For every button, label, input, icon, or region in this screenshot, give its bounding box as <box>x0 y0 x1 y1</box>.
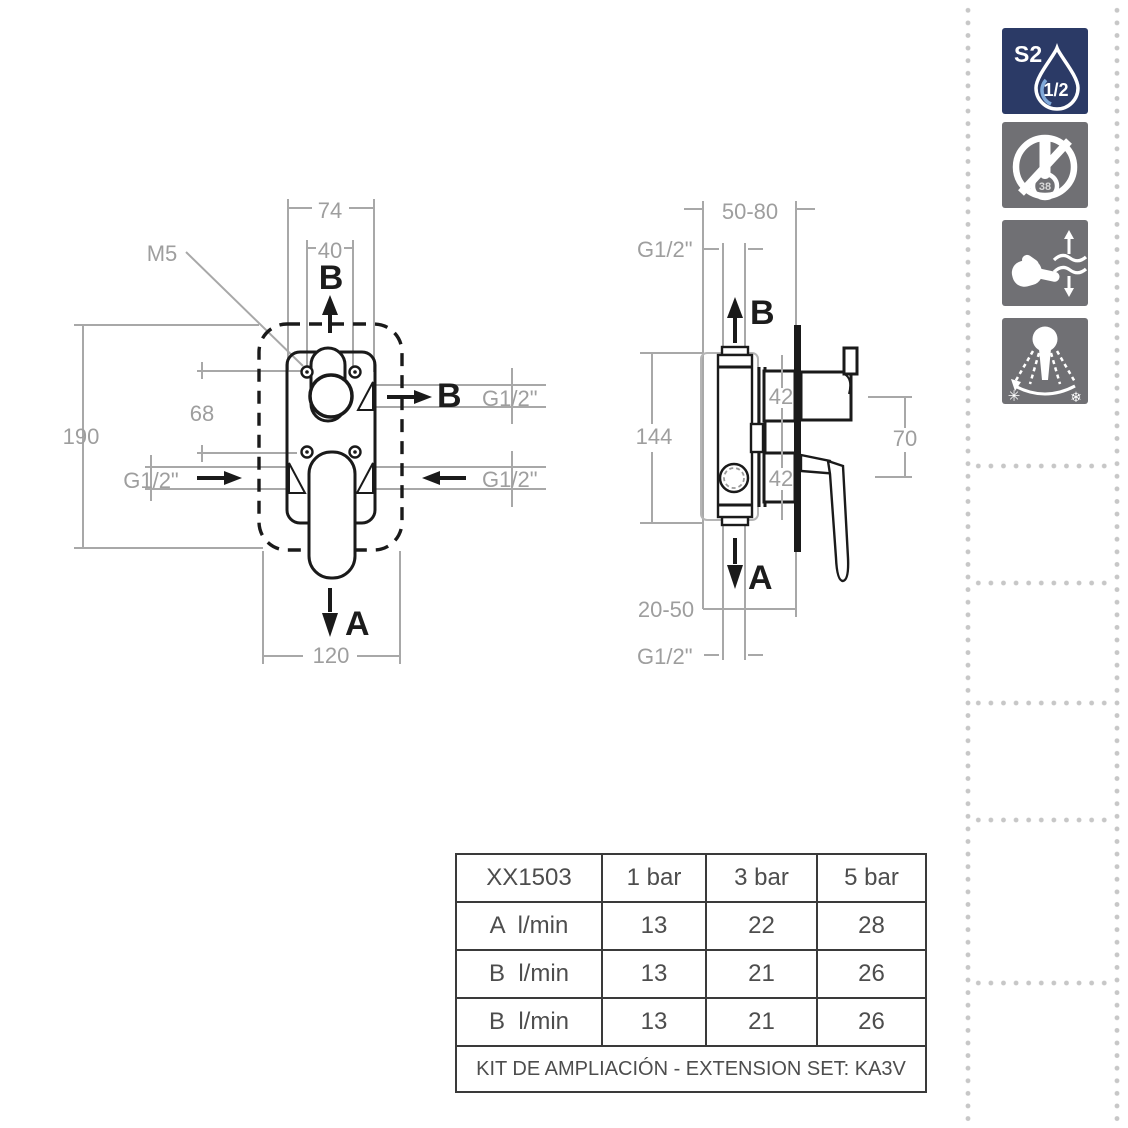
cell-value: 21 <box>706 950 817 998</box>
table-footer-row: KIT DE AMPLIACIÓN - EXTENSION SET: KA3V <box>456 1046 926 1092</box>
sidebar-dotted-divider <box>972 817 1112 823</box>
table-row: B l/min 13 21 26 <box>456 950 926 998</box>
col-header-5bar: 5 bar <box>817 854 926 902</box>
lever-handle <box>309 452 355 578</box>
hand-icon <box>1009 253 1060 290</box>
sidebar-dotted-divider <box>972 580 1112 586</box>
cell-value: 26 <box>817 998 926 1046</box>
thread-label-outlet-side: G1/2" <box>482 386 538 411</box>
table-header-row: XX1503 1 bar 3 bar 5 bar <box>456 854 926 902</box>
flow-class-drop-icon: S2 1/2 <box>1002 28 1088 114</box>
up-down-arrows-icon <box>1064 230 1074 297</box>
dim-label-68: 68 <box>190 401 214 426</box>
cell-value: 22 <box>706 902 817 950</box>
front-fixture <box>287 348 375 578</box>
hand-flow-adjust-icon <box>1002 220 1088 306</box>
trim-plate-profile <box>794 325 801 552</box>
thread-label-top: G1/2" <box>637 237 693 262</box>
dim-label-144: 144 <box>636 424 673 449</box>
side-dimension-lines <box>640 201 912 660</box>
cell-value: 13 <box>602 902 706 950</box>
flow-rate-table: XX1503 1 bar 3 bar 5 bar A l/min 13 22 2… <box>455 853 927 1093</box>
icon-badge-s2: S2 <box>1014 41 1042 67</box>
side-view: 50-80 G1/2" 144 42 42 70 20-50 G1/2" B A <box>636 199 918 669</box>
handle-blade <box>828 461 848 581</box>
row-label: B l/min <box>456 998 602 1046</box>
hot-glyph-icon: ✳ <box>1008 388 1021 404</box>
sidebar-dotted-divider <box>972 980 1112 986</box>
snowflake-icon: ❄ <box>1070 389 1082 404</box>
col-header-3bar: 3 bar <box>706 854 817 902</box>
extension-set-note: KIT DE AMPLIACIÓN - EXTENSION SET: KA3V <box>456 1046 926 1092</box>
thread-label-inlet-right: G1/2" <box>482 467 538 492</box>
thread-label-inlet-left: G1/2" <box>123 468 179 493</box>
side-valve-body <box>718 325 857 581</box>
dim-label-70: 70 <box>893 426 917 451</box>
model-code: XX1503 <box>456 854 602 902</box>
no-thermostatic-limit-icon: 38 <box>1002 122 1088 208</box>
dim-label-42-bottom: 42 <box>769 466 793 491</box>
col-header-1bar: 1 bar <box>602 854 706 902</box>
thread-label-bottom: G1/2" <box>637 644 693 669</box>
outlet-letter-b: B <box>750 294 775 332</box>
sidebar-dotted-divider <box>972 700 1112 706</box>
spout-outlet <box>310 375 352 417</box>
cell-value: 13 <box>602 950 706 998</box>
dim-label-50-80: 50-80 <box>722 199 778 224</box>
thermometer-value: 38 <box>1039 181 1051 193</box>
outlet-letter-a: A <box>748 559 773 597</box>
spray-angle-adjust-icon: ✳ ❄ <box>1002 318 1088 404</box>
spec-sheet: 74 40 M5 190 68 G1/2" G1/2" G1/2" 120 B … <box>0 0 1128 1128</box>
cell-value: 28 <box>817 902 926 950</box>
swivel-arc-icon <box>1015 386 1075 394</box>
row-label: B l/min <box>456 950 602 998</box>
dim-label-42-top: 42 <box>769 384 793 409</box>
screw-label-m5: M5 <box>147 241 178 266</box>
dim-label-190: 190 <box>63 424 100 449</box>
drop-half-label: 1/2 <box>1043 80 1068 100</box>
outlet-letter-b-side: B <box>437 377 462 415</box>
dim-label-74: 74 <box>318 198 342 223</box>
cell-value: 13 <box>602 998 706 1046</box>
row-label: A l/min <box>456 902 602 950</box>
sidebar-dotted-border-right <box>1114 4 1120 1124</box>
spout-profile <box>801 372 851 420</box>
outlet-letter-a: A <box>345 605 370 643</box>
sidebar-dotted-divider <box>972 463 1112 469</box>
dim-label-20-50: 20-50 <box>638 597 694 622</box>
front-view: 74 40 M5 190 68 G1/2" G1/2" G1/2" 120 B … <box>63 198 546 668</box>
outlet-letter-b-top: B <box>319 259 344 297</box>
table-row: A l/min 13 22 28 <box>456 902 926 950</box>
shower-head-icon <box>1033 327 1058 381</box>
cell-value: 26 <box>817 950 926 998</box>
sidebar-dotted-border-left <box>965 4 971 1124</box>
water-flow-icon <box>1054 255 1086 260</box>
table-row: B l/min 13 21 26 <box>456 998 926 1046</box>
cell-value: 21 <box>706 998 817 1046</box>
dim-label-120: 120 <box>313 643 350 668</box>
